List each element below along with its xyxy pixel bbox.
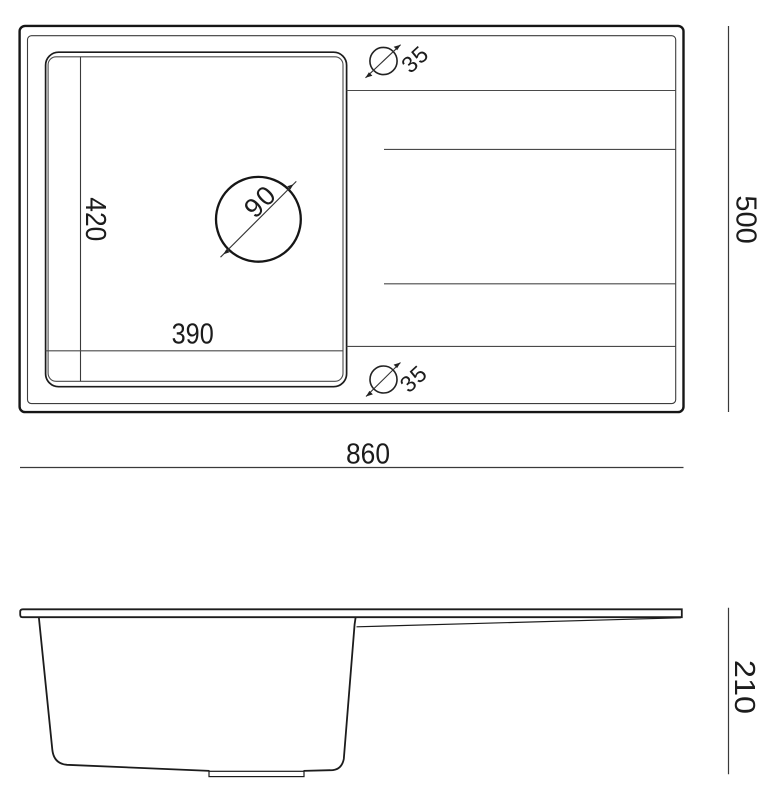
svg-text:420: 420 <box>80 197 112 241</box>
svg-text:860: 860 <box>346 437 390 469</box>
svg-text:210: 210 <box>728 660 761 714</box>
svg-text:390: 390 <box>172 317 214 350</box>
svg-text:500: 500 <box>729 195 761 243</box>
